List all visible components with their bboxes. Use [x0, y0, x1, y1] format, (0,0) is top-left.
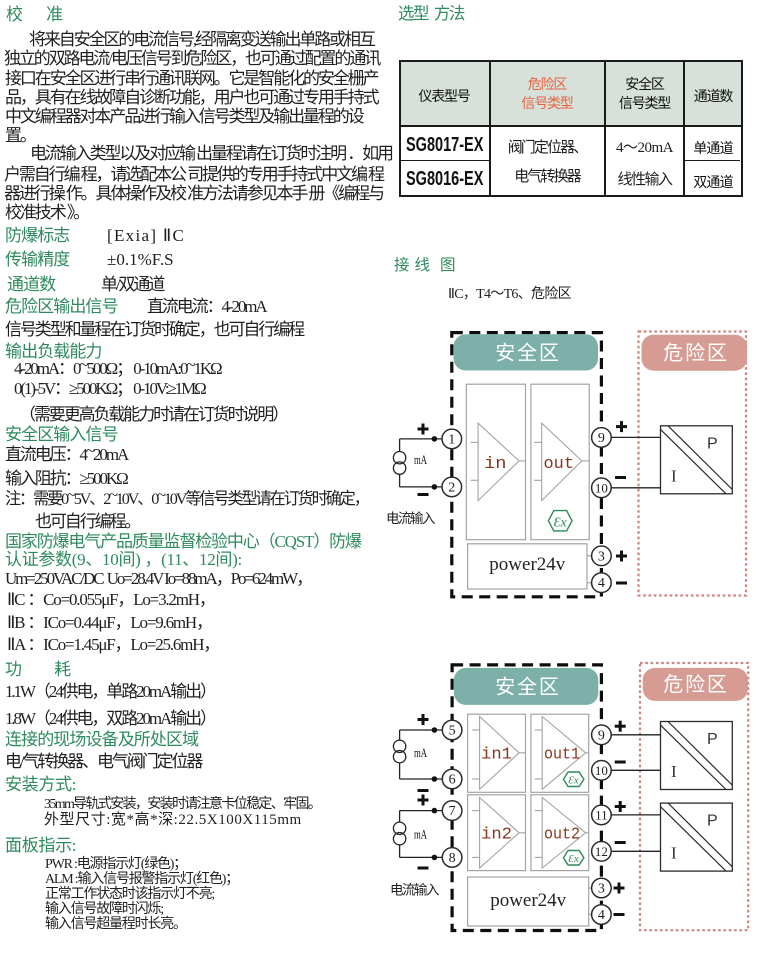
svg-text:3: 3: [598, 549, 605, 564]
svg-text:5: 5: [449, 724, 456, 739]
svg-text:out: out: [544, 455, 575, 474]
svg-text:危险区: 危险区: [663, 673, 728, 696]
svg-text:10: 10: [595, 480, 608, 495]
svg-text:out1: out1: [544, 746, 580, 765]
svg-text:P: P: [707, 731, 718, 748]
svg-text:in2: in2: [481, 826, 512, 845]
svg-text:2: 2: [448, 480, 455, 495]
svg-text:危险区: 危险区: [663, 342, 728, 365]
svg-text:安全区: 安全区: [495, 342, 560, 365]
svg-text:安全区: 安全区: [495, 676, 560, 699]
svg-text:mA: mA: [414, 452, 427, 467]
svg-text:11: 11: [595, 807, 608, 822]
svg-text:mA: mA: [414, 827, 427, 842]
svg-text:3: 3: [598, 882, 605, 897]
svg-text:Ɛx: Ɛx: [554, 515, 568, 530]
svg-text:P: P: [707, 813, 718, 830]
svg-text:12: 12: [595, 844, 608, 859]
svg-text:10: 10: [595, 763, 608, 778]
svg-text:power24v: power24v: [490, 890, 566, 911]
svg-text:7: 7: [449, 804, 456, 819]
svg-text:in1: in1: [481, 746, 512, 765]
svg-text:9: 9: [598, 728, 605, 743]
svg-text:mA: mA: [414, 745, 427, 760]
svg-text:8: 8: [449, 851, 456, 866]
svg-text:I: I: [671, 466, 677, 485]
svg-text:Ɛx: Ɛx: [568, 853, 578, 865]
svg-text:1: 1: [448, 432, 455, 447]
svg-text:I: I: [671, 762, 677, 781]
svg-text:电流输入: 电流输入: [390, 883, 440, 898]
svg-text:in: in: [484, 455, 507, 474]
svg-text:电流输入: 电流输入: [386, 511, 436, 526]
svg-text:9: 9: [598, 431, 605, 446]
svg-text:Ɛx: Ɛx: [568, 774, 578, 786]
svg-text:power24v: power24v: [489, 554, 565, 575]
svg-text:4: 4: [598, 908, 605, 923]
svg-text:4: 4: [598, 576, 605, 591]
svg-text:P: P: [707, 435, 718, 452]
svg-text:I: I: [671, 844, 677, 863]
svg-text:6: 6: [449, 773, 456, 788]
svg-text:out2: out2: [544, 826, 580, 845]
